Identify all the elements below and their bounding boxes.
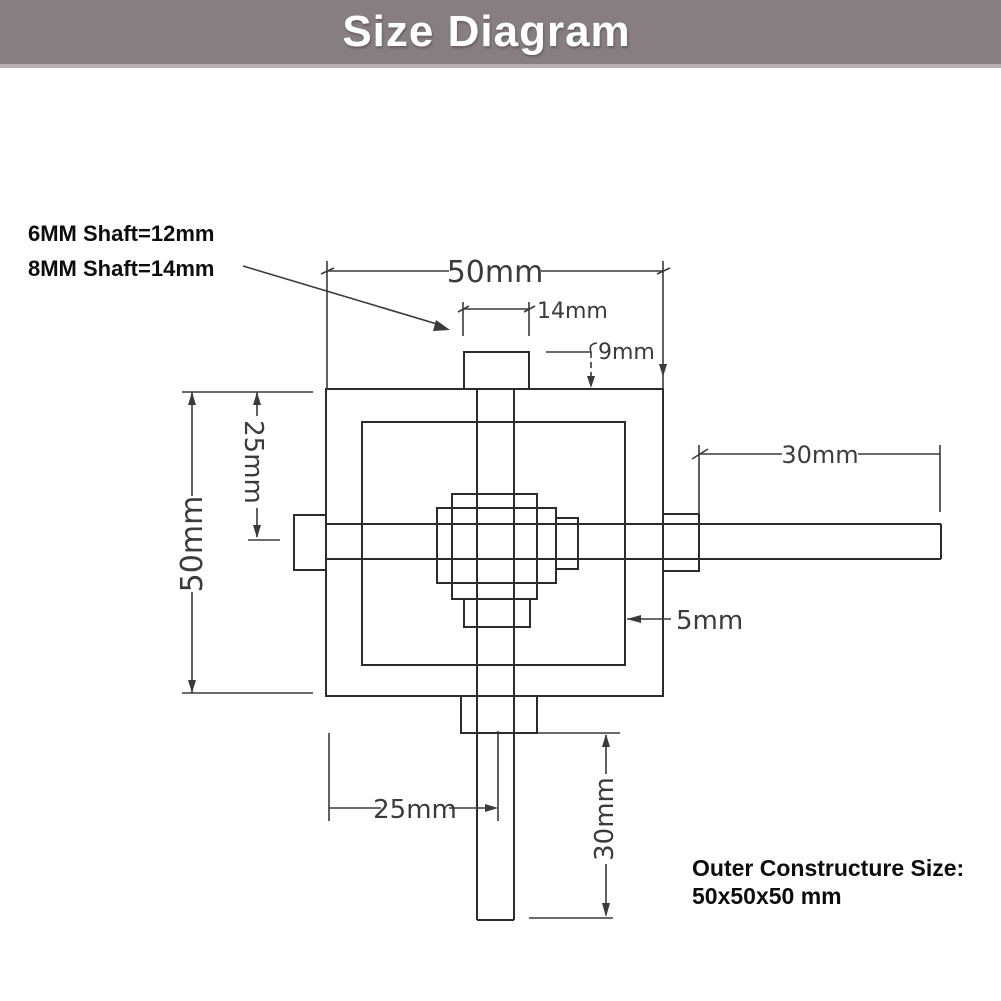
leader-hook	[590, 343, 597, 352]
leader-line	[243, 266, 437, 324]
extension-lines	[463, 302, 529, 336]
outer-square	[326, 389, 663, 696]
dim-label-right-shaft: 30mm	[781, 441, 858, 469]
bottom-collar	[461, 696, 537, 733]
arrowhead-icon	[433, 320, 450, 331]
top-collar	[464, 352, 529, 389]
size-diagram-canvas: 50mm 14mm 9mm 50mm 25mm 30mm	[0, 0, 1001, 1001]
left-arrowhead-icon	[627, 615, 641, 623]
center-block-right	[556, 518, 578, 569]
up-arrowhead-icon	[188, 392, 196, 405]
vertical-shaft	[477, 389, 514, 920]
down-arrowhead-icon	[188, 680, 196, 693]
right-arrowhead-icon	[485, 804, 498, 812]
dim-label-wall: 5mm	[676, 606, 743, 636]
up-arrowhead-icon	[253, 392, 261, 405]
up-arrowhead-icon	[602, 734, 610, 747]
dim-top-shaft-width: 14mm	[458, 299, 608, 336]
dim-label-collar-height: 9mm	[598, 340, 655, 365]
dim-label-top-width: 50mm	[447, 255, 544, 290]
dim-bottom-shaft: 30mm	[529, 733, 620, 918]
horizontal-shaft	[326, 524, 941, 559]
center-block-bottom	[464, 599, 530, 627]
left-collar	[294, 515, 326, 570]
dim-top-width: 50mm	[321, 255, 670, 389]
down-arrowhead-icon	[659, 364, 667, 377]
right-collar	[663, 514, 699, 571]
dim-top-collar-height: 9mm	[546, 340, 655, 388]
dim-label-left-upper: 25mm	[238, 420, 268, 504]
shaft-note-arrow	[243, 266, 450, 331]
down-arrowhead-icon	[602, 903, 610, 917]
down-arrowhead-icon	[253, 525, 261, 538]
dim-label-bottom-shaft: 30mm	[590, 777, 620, 861]
dim-label-left-height: 50mm	[175, 496, 210, 593]
dim-right-shaft: 30mm	[692, 441, 940, 515]
center-block-wide	[437, 508, 556, 583]
dim-label-bottom-offset: 25mm	[373, 795, 457, 825]
dim-label-top-shaft: 14mm	[537, 299, 608, 324]
dim-wall-thickness: 5mm	[627, 606, 743, 636]
down-arrowhead-icon	[587, 376, 595, 388]
inner-square	[362, 422, 625, 665]
dim-left-upper: 25mm	[238, 392, 280, 540]
dim-bottom-offset: 25mm	[329, 731, 498, 825]
